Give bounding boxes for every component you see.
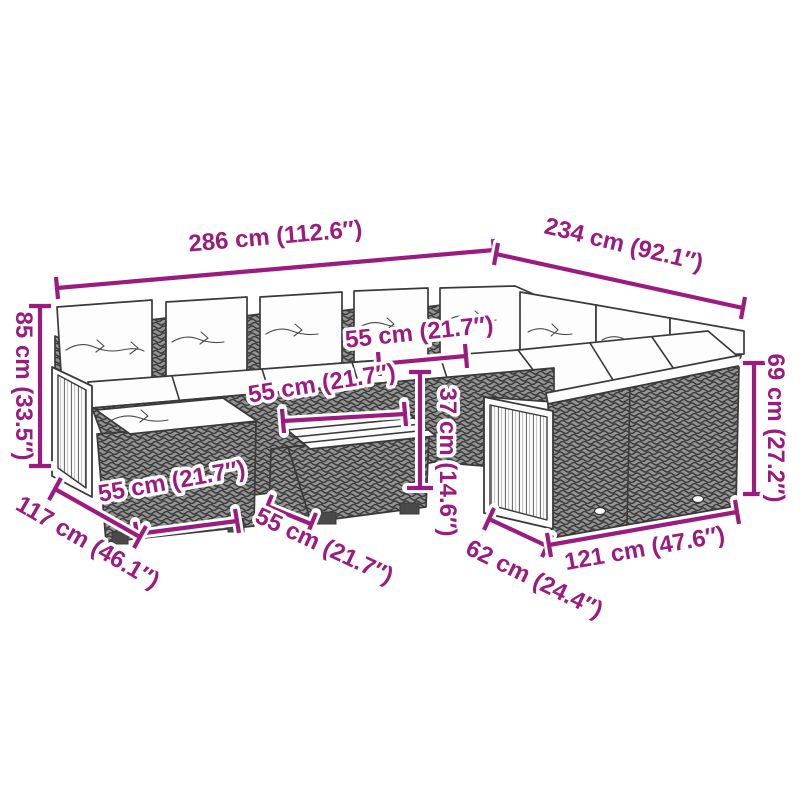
diagram-canvas: 286 cm (112.6″) 234 cm (92.1″) 85 cm (33… xyxy=(0,0,800,800)
dim-overall-height: 85 cm (33.5″) xyxy=(10,306,51,466)
sofa-set-dimension-diagram: 286 cm (112.6″) 234 cm (92.1″) 85 cm (33… xyxy=(0,0,800,800)
dimension-label: 37 cm (14.6″) xyxy=(434,388,461,537)
dim-back-height-right: 69 cm (27.2″) xyxy=(743,354,789,503)
dimension-label: 286 cm (112.6″) xyxy=(187,215,363,257)
coffee-table xyxy=(269,412,436,524)
dimension-label: 69 cm (27.2″) xyxy=(762,354,789,503)
dimension-label: 85 cm (33.5″) xyxy=(10,312,37,461)
dim-overall-width-left: 286 cm (112.6″) xyxy=(56,215,495,299)
dimension-line xyxy=(743,363,765,494)
